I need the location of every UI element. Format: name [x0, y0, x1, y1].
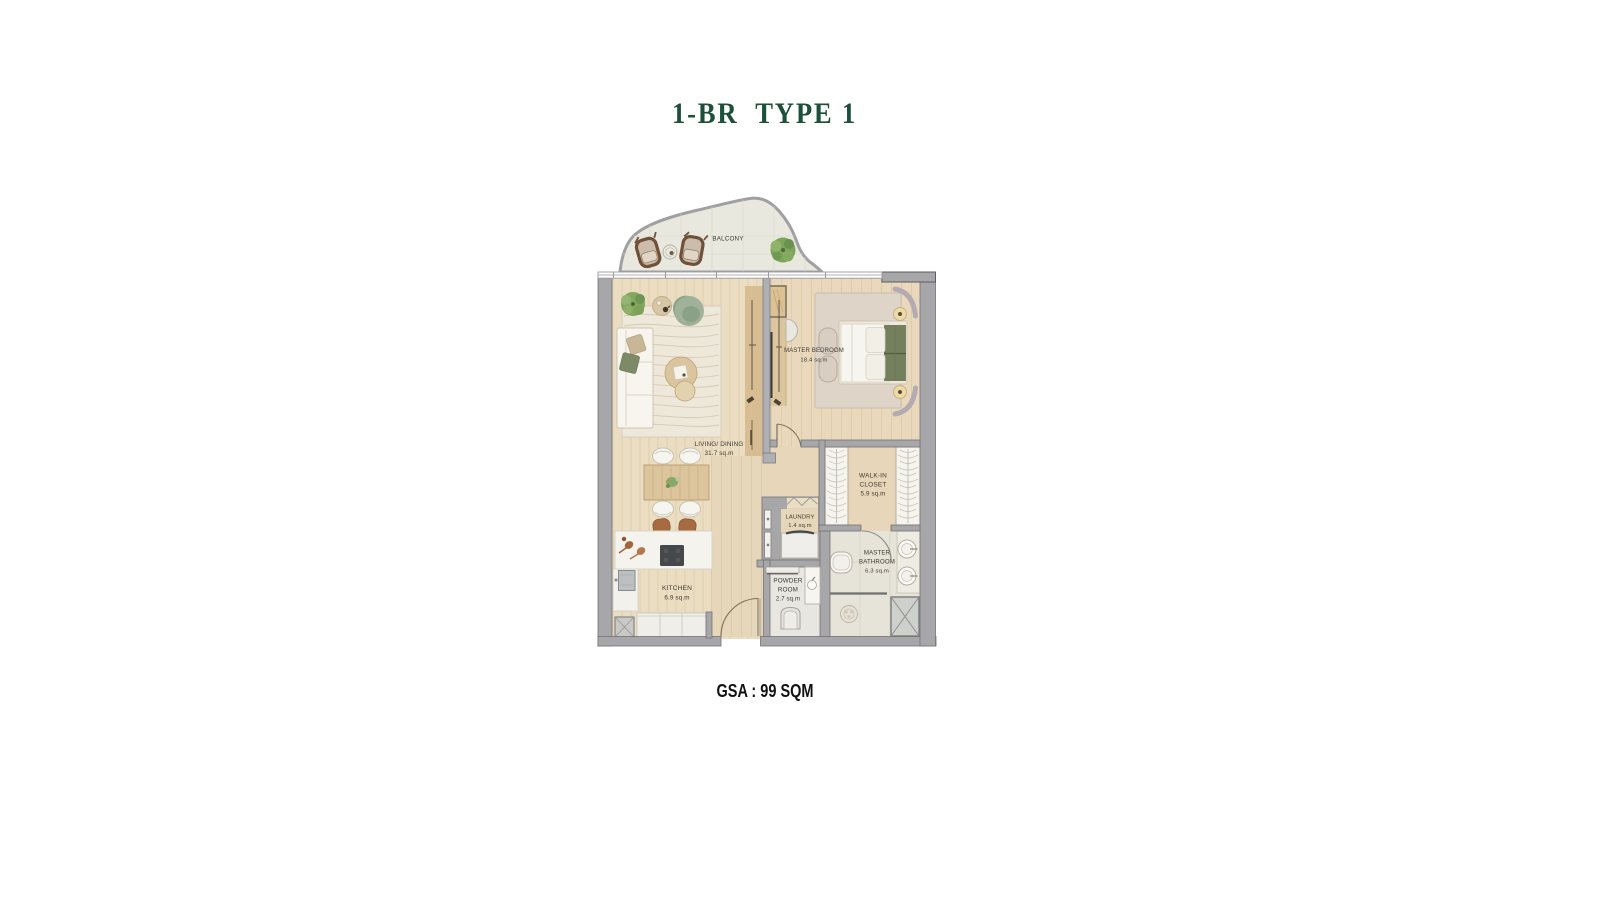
- svg-text:6.3 sq.m: 6.3 sq.m: [865, 569, 889, 575]
- svg-text:6.9 sq.m: 6.9 sq.m: [664, 595, 689, 602]
- svg-text:CLOSET: CLOSET: [860, 482, 887, 489]
- svg-text:POWDER: POWDER: [773, 578, 803, 585]
- svg-text:1.4 sq.m: 1.4 sq.m: [788, 523, 811, 529]
- svg-text:BALCONY: BALCONY: [712, 236, 744, 243]
- svg-text:MASTER BEDROOM: MASTER BEDROOM: [784, 348, 844, 354]
- svg-text:WALK-IN: WALK-IN: [859, 473, 887, 480]
- svg-text:ROOM: ROOM: [778, 587, 798, 594]
- svg-text:BATHROOM: BATHROOM: [859, 559, 895, 566]
- svg-text:1-BR TYPE 1: 1-BR TYPE 1: [672, 97, 857, 130]
- svg-text:2.7 sq.m: 2.7 sq.m: [776, 597, 800, 603]
- svg-text:LAUNDRY: LAUNDRY: [785, 515, 814, 521]
- svg-text:18.4 sq.m: 18.4 sq.m: [800, 358, 827, 364]
- svg-text:GSA : 99 SQM: GSA : 99 SQM: [717, 681, 814, 701]
- svg-text:31.7 sq.m: 31.7 sq.m: [704, 450, 733, 457]
- svg-text:LIVING/ DINING: LIVING/ DINING: [695, 441, 744, 448]
- svg-text:MASTER: MASTER: [864, 550, 891, 557]
- svg-text:KITCHEN: KITCHEN: [662, 585, 692, 592]
- svg-text:5.9 sq.m: 5.9 sq.m: [861, 491, 886, 498]
